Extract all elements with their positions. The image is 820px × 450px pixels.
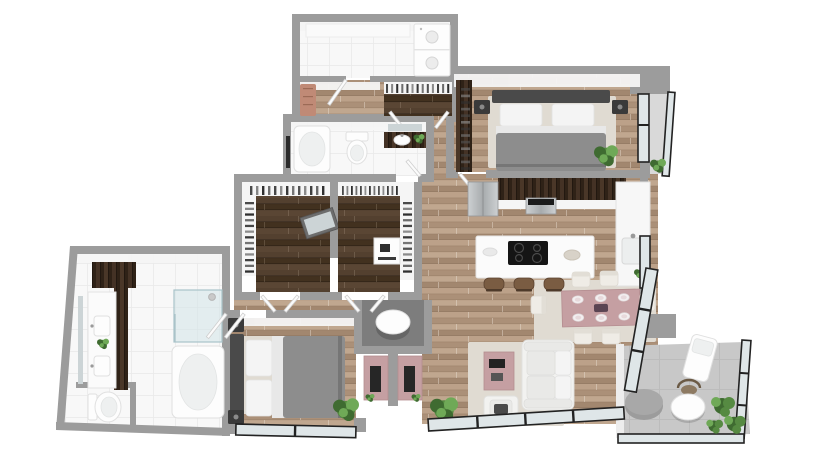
balcony-side-wall xyxy=(616,344,624,438)
wardrobe xyxy=(456,80,472,172)
wall-segment xyxy=(234,174,242,300)
pillow xyxy=(500,104,542,126)
tv-console-left xyxy=(364,356,388,402)
table-decor xyxy=(491,373,503,381)
wall-face xyxy=(230,318,354,326)
throw-pillow xyxy=(494,404,508,414)
shower xyxy=(174,290,222,342)
plant xyxy=(366,394,375,402)
wall-segment xyxy=(486,170,646,178)
gray-ottoman xyxy=(625,389,663,420)
dining-chair xyxy=(574,329,592,344)
fridge xyxy=(468,182,498,216)
toilet xyxy=(346,132,368,164)
wall-segment xyxy=(292,76,346,82)
nightstand xyxy=(612,100,628,114)
wall-segment xyxy=(300,292,342,300)
master-window-band xyxy=(236,424,356,438)
laundry-cabinet-row xyxy=(306,24,410,37)
wall-face xyxy=(78,254,222,263)
bar-stool xyxy=(544,278,564,292)
floor-plan-rendering xyxy=(0,0,820,450)
sofa-seat xyxy=(527,376,555,399)
wall-segment xyxy=(234,174,396,182)
bed-headboard xyxy=(492,90,610,103)
master-bathtub xyxy=(172,346,224,418)
wall-segment xyxy=(292,14,300,122)
faucet xyxy=(401,134,404,137)
wall-segment xyxy=(226,310,240,318)
tv-screen xyxy=(404,366,415,392)
wall-segment xyxy=(388,292,422,300)
bench-slat xyxy=(303,88,313,89)
island-cooktop xyxy=(508,241,548,265)
centerpiece xyxy=(594,304,608,312)
toilet xyxy=(88,392,121,422)
sofa-back-cushion xyxy=(555,376,571,399)
sofa xyxy=(522,340,574,410)
island-decor xyxy=(483,248,497,256)
plate xyxy=(619,312,630,320)
niche-wall xyxy=(424,300,432,352)
bench-slat xyxy=(303,104,313,105)
coffee-table xyxy=(484,352,514,390)
dining-chair xyxy=(531,296,546,314)
cafe-chair-seat xyxy=(681,385,697,395)
wall-segment xyxy=(414,182,422,300)
sink xyxy=(94,356,110,376)
wall-face xyxy=(454,74,640,87)
plate xyxy=(618,293,629,301)
plate xyxy=(596,314,607,322)
dining-chair xyxy=(602,329,620,344)
faucet xyxy=(631,234,636,239)
plate xyxy=(573,314,584,322)
nightstand xyxy=(474,100,490,114)
bed-headboard xyxy=(230,334,244,418)
cabinet-face xyxy=(498,200,626,209)
round-pedestal xyxy=(376,310,410,334)
table-decor xyxy=(489,359,505,368)
sofa-armrest xyxy=(524,342,572,351)
wall-segment xyxy=(266,310,358,318)
sink xyxy=(94,316,110,336)
bar-stool xyxy=(514,278,534,292)
stove xyxy=(526,198,556,214)
bench-slat xyxy=(303,96,313,97)
shower-glass-door xyxy=(174,314,176,342)
plate xyxy=(595,294,606,302)
wall-segment xyxy=(70,246,230,254)
faucet xyxy=(90,324,93,327)
console-divider-wall xyxy=(388,354,398,406)
tv-console-right xyxy=(398,356,422,402)
mirror xyxy=(388,124,422,131)
wall-wc-partition xyxy=(130,382,136,428)
balcony-railing-bottom xyxy=(618,434,744,443)
pillow xyxy=(552,104,594,126)
bath-cabinet xyxy=(92,262,136,288)
wall-segment xyxy=(292,14,458,22)
wall-segment xyxy=(446,66,650,74)
vanity xyxy=(384,124,426,148)
plant xyxy=(412,394,421,402)
sofa-back-cushion xyxy=(555,351,571,375)
niche-wall xyxy=(354,346,432,354)
closet-dresser xyxy=(374,238,400,264)
tv-screen xyxy=(370,366,381,392)
island-decor xyxy=(564,250,580,260)
wall-segment xyxy=(370,76,458,82)
bar-stool xyxy=(484,278,504,292)
nightstand xyxy=(228,410,244,424)
wall-segment xyxy=(426,114,434,182)
floor-plan-canvas xyxy=(0,0,820,450)
pillow xyxy=(246,340,272,376)
dining-chair xyxy=(572,272,590,287)
wall-segment xyxy=(234,292,260,300)
wall-cabinets xyxy=(498,178,626,200)
duvet-edge xyxy=(496,164,606,167)
bathtub-basin xyxy=(299,132,325,166)
mirror xyxy=(78,296,83,384)
shower-head xyxy=(209,294,216,301)
stacked-washer-dryer xyxy=(414,24,450,76)
faucet xyxy=(90,364,93,367)
pillow xyxy=(246,380,272,416)
bedroom2-window-band xyxy=(638,94,649,162)
dining-chair xyxy=(600,271,618,286)
round-cafe-table xyxy=(671,394,705,423)
towel-rail xyxy=(286,136,290,168)
sofa-seat xyxy=(527,351,555,375)
sofa-armrest xyxy=(524,399,572,408)
plate xyxy=(572,296,583,304)
